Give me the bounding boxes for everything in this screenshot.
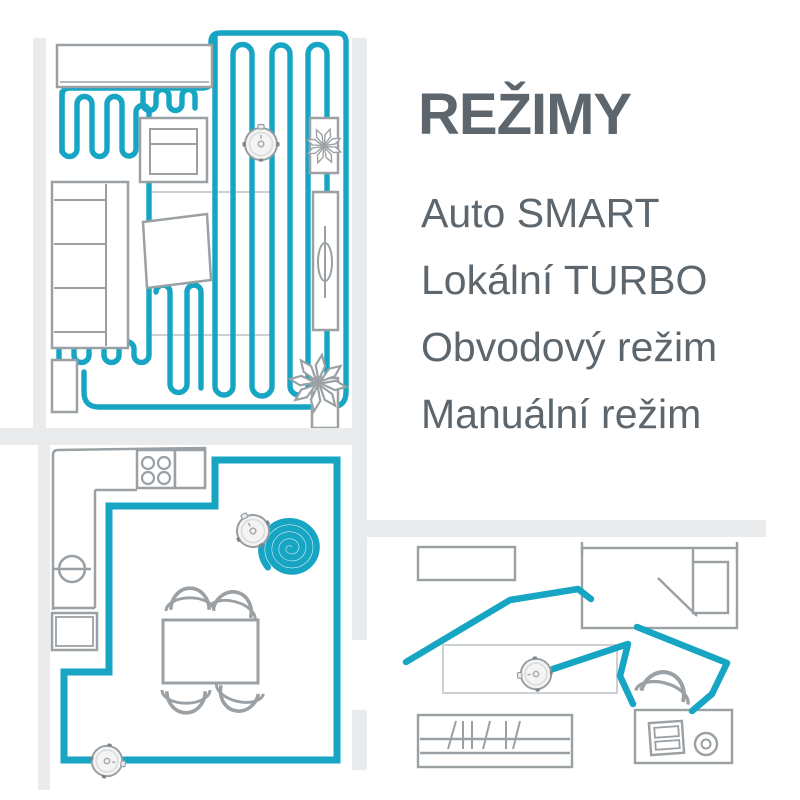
perimeter-path-icon bbox=[64, 460, 337, 760]
modes-list: Auto SMART Lokální TURBO Obvodový režim … bbox=[421, 180, 717, 448]
chair bbox=[162, 690, 210, 713]
mode-perimeter: Obvodový režim bbox=[421, 314, 717, 381]
coffee-table bbox=[143, 214, 211, 288]
chair bbox=[212, 683, 264, 716]
sofa bbox=[52, 182, 128, 348]
manual-room-floorplan bbox=[352, 520, 766, 767]
tv-stand bbox=[635, 710, 732, 763]
chair bbox=[208, 587, 260, 621]
shelf bbox=[418, 547, 515, 580]
mode-local-turbo: Lokální TURBO bbox=[421, 247, 717, 314]
robot-vacuum-icon bbox=[516, 655, 554, 693]
study-furniture bbox=[418, 542, 737, 767]
sideboard bbox=[57, 45, 212, 87]
chair bbox=[636, 666, 695, 705]
robot-vacuum-icon bbox=[87, 741, 128, 782]
modes-infographic: REŽIMY Auto SMART Lokální TURBO Obvodový… bbox=[0, 0, 800, 800]
bookshelf bbox=[418, 715, 572, 767]
console-cabinet bbox=[313, 192, 338, 330]
mode-manual: Manuální režim bbox=[421, 381, 717, 448]
dining-table bbox=[163, 620, 258, 683]
dishwasher bbox=[52, 613, 97, 650]
kitchen-floorplan bbox=[38, 445, 367, 790]
wall-divider bbox=[352, 520, 766, 537]
side-table bbox=[52, 360, 77, 412]
page-title: REŽIMY bbox=[418, 84, 631, 146]
wall-divider bbox=[0, 428, 367, 445]
desk bbox=[582, 542, 737, 628]
living-room-floorplan bbox=[33, 33, 367, 428]
mode-auto-smart: Auto SMART bbox=[421, 180, 717, 247]
kitchen-furniture bbox=[52, 448, 258, 683]
chair bbox=[166, 588, 214, 611]
